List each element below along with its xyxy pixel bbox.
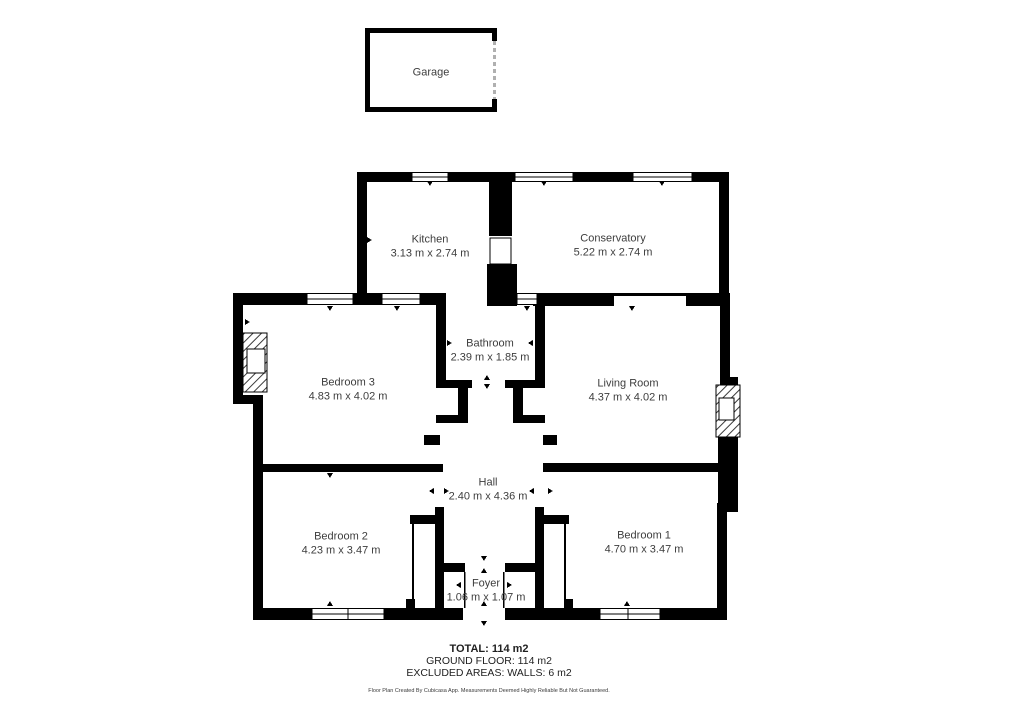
room-name: Conservatory — [574, 233, 653, 247]
room-label-bedroom3: Bedroom 3 4.83 m x 4.02 m — [309, 377, 388, 404]
room-label-bedroom1: Bedroom 1 4.70 m x 3.47 m — [605, 530, 684, 557]
room-label-bathroom: Bathroom 2.39 m x 1.85 m — [451, 338, 530, 365]
floor-plan-page: Garage Kitchen 3.13 m x 2.74 m Conservat… — [0, 0, 1020, 707]
room-dims: 4.23 m x 3.47 m — [302, 544, 381, 558]
room-label-foyer: Foyer 1.06 m x 1.07 m — [447, 578, 526, 605]
room-name: Bedroom 3 — [309, 377, 388, 391]
room-dims: 5.22 m x 2.74 m — [574, 246, 653, 260]
ground-floor-area: GROUND FLOOR: 114 m2 — [406, 656, 571, 668]
room-label-kitchen: Kitchen 3.13 m x 2.74 m — [391, 234, 470, 261]
disclaimer-text: Floor Plan Created By Cubicasa App. Meas… — [368, 688, 610, 694]
room-label-living-room: Living Room 4.37 m x 4.02 m — [589, 378, 668, 405]
room-name: Living Room — [589, 378, 668, 392]
interior-door-icon — [490, 238, 511, 264]
room-dims: 4.37 m x 4.02 m — [589, 391, 668, 405]
room-label-garage: Garage — [413, 66, 450, 80]
room-name: Bedroom 2 — [302, 531, 381, 545]
room-label-hall: Hall 2.40 m x 4.36 m — [449, 477, 528, 504]
chimney-livingroom-icon — [716, 385, 740, 437]
chimney-bedroom3-icon — [243, 333, 267, 392]
room-dims: 2.40 m x 4.36 m — [449, 490, 528, 504]
room-dims: 3.13 m x 2.74 m — [391, 247, 470, 261]
room-label-conservatory: Conservatory 5.22 m x 2.74 m — [574, 233, 653, 260]
room-name: Bathroom — [451, 338, 530, 352]
room-name: Kitchen — [391, 234, 470, 248]
room-name: Hall — [449, 477, 528, 491]
room-dims: 2.39 m x 1.85 m — [451, 351, 530, 365]
room-dims: 1.06 m x 1.07 m — [447, 591, 526, 605]
room-name: Bedroom 1 — [605, 530, 684, 544]
room-dims: 4.83 m x 4.02 m — [309, 390, 388, 404]
room-name: Garage — [413, 66, 450, 80]
room-name: Foyer — [447, 578, 526, 592]
excluded-area: EXCLUDED AREAS: WALLS: 6 m2 — [406, 668, 571, 680]
area-summary: TOTAL: 114 m2 GROUND FLOOR: 114 m2 EXCLU… — [406, 644, 571, 679]
room-label-bedroom2: Bedroom 2 4.23 m x 3.47 m — [302, 531, 381, 558]
room-dims: 4.70 m x 3.47 m — [605, 543, 684, 557]
